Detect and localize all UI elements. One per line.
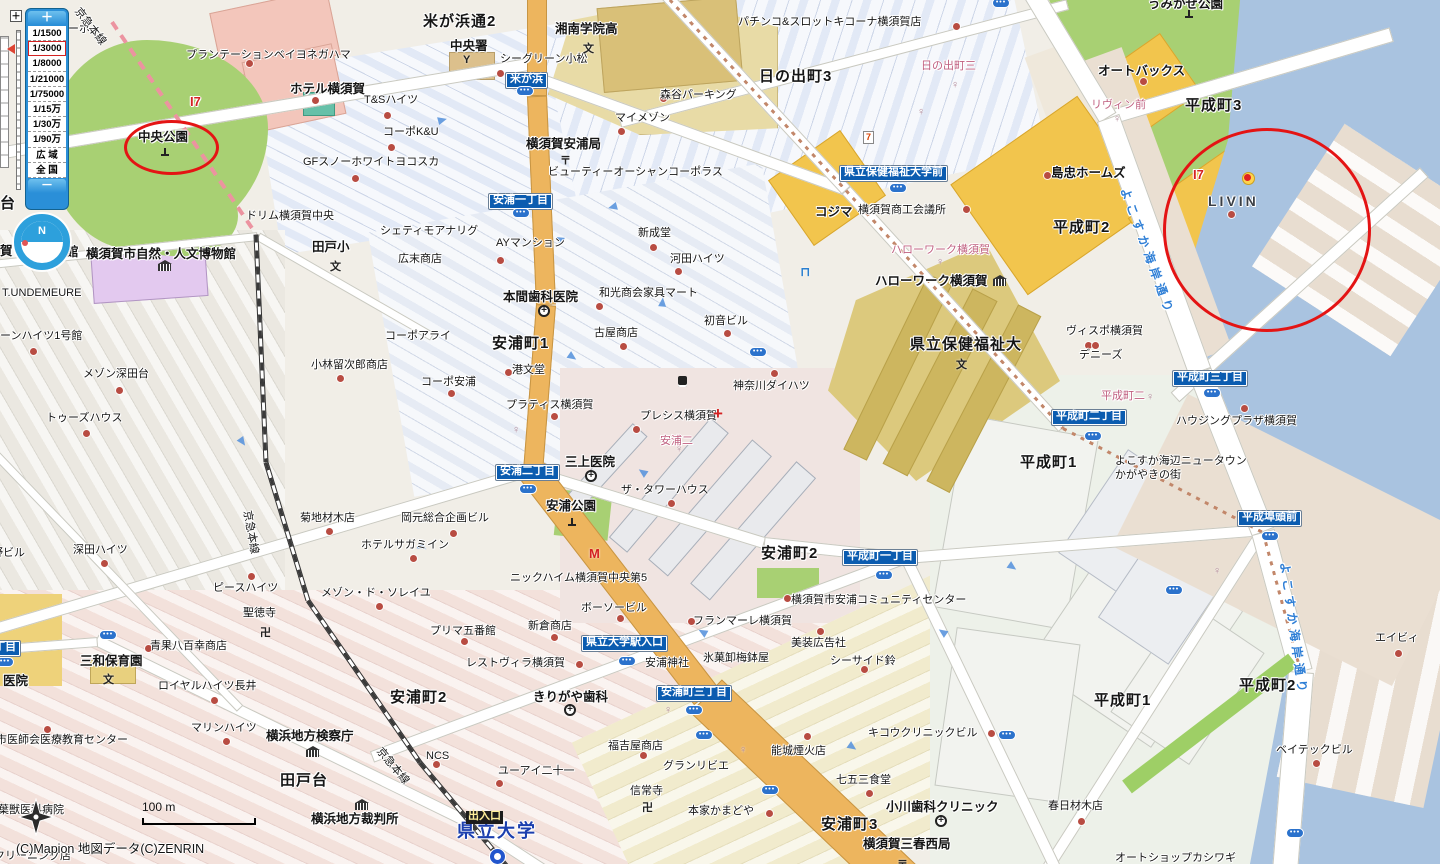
scale-option-[interactable]: 全 国 xyxy=(28,163,66,178)
school-icon: 文 xyxy=(103,671,114,687)
bus-stop-icon: ••• xyxy=(1261,531,1279,541)
place-label: 能城煙火店 xyxy=(771,746,826,758)
place-label: 横須賀商工会議所 xyxy=(858,205,946,217)
zoom-slider[interactable] xyxy=(16,30,21,190)
place-label: シェティモアナリグ xyxy=(380,226,478,238)
facility-label: 小川歯科クリニック xyxy=(886,801,999,814)
district-label: 平成町3 xyxy=(1185,98,1242,114)
facility-label: 医院 xyxy=(3,675,28,688)
poi-dot xyxy=(312,97,319,104)
bus-stop-icon: ••• xyxy=(0,657,14,667)
district-label: 県立保健福祉大 xyxy=(910,337,1022,353)
bus-stop-icon: ••• xyxy=(516,86,534,96)
panel-expand-button[interactable]: ＋ xyxy=(10,10,22,22)
poi-dot xyxy=(771,370,778,377)
place-label: プランテーションベイヨネガハマ xyxy=(186,50,351,62)
map-viewport[interactable]: ＋ ＋ 1/15001/30001/80001/210001/750001/15… xyxy=(0,0,1440,864)
place-label: キコウクリニックビル xyxy=(868,728,978,740)
poi-dot xyxy=(211,697,218,704)
poi-dot xyxy=(618,128,625,135)
place-label: ロイヤルハイツ長井 xyxy=(158,681,256,693)
traffic-signal-icon: ♀ xyxy=(917,106,925,118)
place-label: 氷菓卸梅鉢屋 xyxy=(703,653,769,665)
place-label: ヴィスポ横須賀 xyxy=(1066,326,1143,338)
poi-dot xyxy=(817,628,824,635)
place-label: グリーンハイツ1号館 xyxy=(0,331,82,343)
compass-north-label: N xyxy=(21,221,63,242)
bus-stop-icon: ••• xyxy=(99,630,117,640)
poi-dot xyxy=(497,70,504,77)
poi-dot xyxy=(668,500,675,507)
poi-dot xyxy=(101,560,108,567)
facility-label: 三上医院 xyxy=(565,456,615,469)
place-label: T&Sハイツ xyxy=(364,95,418,107)
poi-dot xyxy=(410,555,417,562)
bus-stop-icon: ••• xyxy=(1286,828,1304,838)
poi-dot xyxy=(650,244,657,251)
intersection-sign: 安浦町三丁目 xyxy=(657,686,731,701)
district-label: 平成町1 xyxy=(1094,693,1151,709)
scale-bar xyxy=(142,818,256,825)
school-icon: 文 xyxy=(330,258,341,274)
district-label: 田戸台 xyxy=(280,773,328,789)
place-label: パチンコ&スロットキコーナ横須賀店 xyxy=(738,17,921,29)
poi-dot xyxy=(505,369,512,376)
poi-dot xyxy=(248,573,255,580)
poi-dot xyxy=(1313,760,1320,767)
poi-dot xyxy=(1078,818,1085,825)
place-label: 広末商店 xyxy=(398,254,442,266)
place-label: 新成堂 xyxy=(638,228,671,240)
bus-stop-icon: ••• xyxy=(998,730,1016,740)
place-label: 美装広告社 xyxy=(791,638,846,650)
place-label: 野ビル xyxy=(0,548,25,560)
intersection-sign: 平成町二丁目 xyxy=(1052,410,1126,425)
scale-option-18000[interactable]: 1/8000 xyxy=(28,56,66,71)
facility-label: 横浜地方検察庁 xyxy=(266,730,354,743)
hospital-icon: + xyxy=(538,305,550,317)
traffic-signal-icon: ♀ xyxy=(739,744,747,756)
scale-option-175000[interactable]: 1/75000 xyxy=(28,87,66,102)
signal-name-label: 平成町二 xyxy=(1101,391,1145,403)
gov-building-icon xyxy=(355,799,369,810)
bus-stop-icon: ••• xyxy=(992,0,1010,8)
place-label: ユーアイ二十一 xyxy=(498,766,575,778)
hospital-icon: + xyxy=(564,704,576,716)
intersection-sign: 平成埠頭前 xyxy=(1238,511,1301,526)
place-label: 青果八百幸商店 xyxy=(150,641,227,653)
place-label: メゾン・ド・ソレイユ xyxy=(321,588,431,600)
place-label: 深田ハイツ xyxy=(73,545,128,557)
signal-name-label: 日の出町三 xyxy=(921,61,976,73)
bus-stop-icon: ••• xyxy=(749,347,767,357)
scale-option-[interactable]: 広 域 xyxy=(28,148,66,163)
post-office-icon: 〒 xyxy=(560,152,571,168)
poi-dot xyxy=(766,810,773,817)
zoom-in-button[interactable]: ＋ xyxy=(28,11,66,25)
place-label: シーサイド鈴 xyxy=(830,656,896,668)
gov-building-icon xyxy=(993,275,1007,286)
place-label: 安浦神社 xyxy=(645,658,689,670)
traffic-signal-icon: ♀ xyxy=(664,704,672,716)
scale-list: 1/15001/30001/80001/210001/750001/15万1/3… xyxy=(28,26,66,178)
poi-dot xyxy=(30,348,37,355)
place-label: よこすか海辺ニュータウン xyxy=(1115,456,1247,468)
poi-dot xyxy=(337,375,344,382)
place-label: 河田ハイツ xyxy=(670,254,725,266)
compass-red-dot xyxy=(22,240,28,246)
poi-dot xyxy=(675,268,682,275)
bus-stop-icon: ••• xyxy=(889,183,907,193)
grid-ref-label: I7 xyxy=(190,95,201,109)
district-label: 平成町2 xyxy=(1239,678,1296,694)
poi-dot xyxy=(804,733,811,740)
intersection-sign: 平成町三丁目 xyxy=(1173,371,1247,386)
poi-dot xyxy=(450,530,457,537)
place-label: コーポアライ xyxy=(385,331,451,343)
poi-dot xyxy=(784,595,791,602)
compass-control[interactable]: N xyxy=(14,214,70,270)
intersection-sign: 安浦一丁目 xyxy=(489,194,552,209)
place-label: 春日材木店 xyxy=(1048,801,1103,813)
poi-dot xyxy=(551,413,558,420)
bus-stop-icon: ••• xyxy=(1084,431,1102,441)
zoom-control[interactable]: ＋ 1/15001/30001/80001/210001/750001/15万1… xyxy=(25,8,69,210)
scale-bar-label: 100 m xyxy=(142,800,175,814)
place-label: 市医師会医療教育センター xyxy=(0,735,128,747)
poi-dot xyxy=(326,528,333,535)
scale-option-11500[interactable]: 1/1500 xyxy=(28,26,66,41)
traffic-signal-icon: ♀ xyxy=(1146,391,1154,403)
bus-stop-icon: ••• xyxy=(618,656,636,666)
place-label: AYマンション xyxy=(496,238,565,250)
place-label: ザ・タワーハウス xyxy=(621,485,709,497)
traffic-signal-icon: ♀ xyxy=(512,424,520,436)
place-label: フランマーレ横須賀 xyxy=(693,616,792,628)
poi-dot xyxy=(83,430,90,437)
place-label: ハウジングプラザ横須賀 xyxy=(1176,416,1297,428)
police-icon: Y xyxy=(463,54,470,66)
place-label: デニーズ xyxy=(1079,350,1122,362)
district-label: 安浦町3 xyxy=(821,817,878,833)
place-label: 菊地材木店 xyxy=(300,513,355,525)
place-label: プリマ五番館 xyxy=(430,626,496,638)
bus-stop-icon: ••• xyxy=(761,785,779,795)
facility-label: 中央署 xyxy=(450,40,488,53)
district-label: 平成町1 xyxy=(1020,455,1077,471)
facility-label: 横須賀三春西局 xyxy=(863,838,951,851)
place-label: メゾン深田台 xyxy=(83,369,149,381)
bridge-icon: ⊓ xyxy=(800,264,810,280)
seven-eleven-icon: 7 xyxy=(863,131,874,144)
place-label: ビューティーオーシャンコーポラス xyxy=(548,167,723,179)
place-label: 七五三食堂 xyxy=(836,775,891,787)
place-label: グランリビエ xyxy=(663,761,729,773)
poi-dot xyxy=(633,426,640,433)
signal-name-label: ハローワーク横須賀 xyxy=(891,245,990,257)
annotation-red-circle xyxy=(1163,128,1371,332)
station-icon xyxy=(490,849,505,864)
post-office-icon: 〒 xyxy=(897,856,908,864)
scale-option-190[interactable]: 1/90万 xyxy=(28,132,66,147)
facility-label: きりがや歯科 xyxy=(533,691,608,704)
poi-dot xyxy=(352,175,359,182)
intersection-sign: 3丁目 xyxy=(0,641,20,656)
poi-dot xyxy=(551,634,558,641)
place-label: 港文堂 xyxy=(512,365,545,377)
facility-label: コジマ xyxy=(815,206,853,219)
poi-dot xyxy=(620,343,627,350)
fountain-icon xyxy=(1184,10,1194,19)
place-label: シーグリーン小松 xyxy=(500,54,587,66)
place-label: 聖徳寺 xyxy=(243,608,276,620)
place-label: プラティス横須賀 xyxy=(506,400,593,412)
signal-name-label: 安浦二 xyxy=(660,436,693,448)
place-label: かがやきの街 xyxy=(1115,470,1181,482)
poi-dot xyxy=(376,603,383,610)
facility-label: 本間歯科医院 xyxy=(503,291,578,304)
poi-dot xyxy=(44,726,51,733)
intersection-sign: 安浦二丁目 xyxy=(496,465,559,480)
poi-dot xyxy=(116,387,123,394)
side-panel-sliver[interactable] xyxy=(0,36,9,168)
facility-label: 横浜地方裁判所 xyxy=(311,813,399,826)
fountain-icon xyxy=(567,518,577,527)
poi-dot xyxy=(866,790,873,797)
station-name: 県立大学 xyxy=(457,822,537,841)
bus-stop-icon: ••• xyxy=(685,705,703,715)
place-label: トゥーズハウス xyxy=(46,413,122,425)
place-label: レストヴィラ横須賀 xyxy=(466,658,565,670)
poi-dot xyxy=(1092,342,1099,349)
place-label: プレシス横須賀 xyxy=(640,411,717,423)
facility-label: 賀 xyxy=(0,245,13,258)
bus-stop-icon: ••• xyxy=(875,570,893,580)
place-label: ピースハイツ xyxy=(213,583,278,595)
poi-dot xyxy=(596,303,603,310)
poi-dot xyxy=(1044,172,1051,179)
place-label: コーポK&U xyxy=(383,127,439,139)
poi-dot xyxy=(1085,342,1092,349)
district-label: 平成町2 xyxy=(1053,220,1110,236)
place-label: 本家かまどや xyxy=(688,806,754,818)
place-label: 和光商会家具マート xyxy=(599,288,698,300)
poi-dot xyxy=(448,390,455,397)
annotation-red-circle xyxy=(124,120,219,175)
place-label: 古屋商店 xyxy=(594,328,638,340)
red-cross-icon: + xyxy=(713,404,723,424)
facility-label: 安浦公園 xyxy=(546,500,596,513)
place-label: ドリム横須賀中央 xyxy=(246,211,334,223)
place-label: マイメゾン xyxy=(615,113,670,125)
station-exit-sign: 出入口 xyxy=(466,811,503,824)
poi-dot xyxy=(461,638,468,645)
hospital-icon: + xyxy=(585,470,597,482)
facility-label: 湘南学院高 xyxy=(555,23,618,36)
place-label: マリンハイツ xyxy=(191,723,257,735)
place-label: ニックハイム横須賀中央第5 xyxy=(510,573,647,585)
poi-dot xyxy=(988,730,995,737)
district-label: 安浦町2 xyxy=(390,690,447,706)
place-label: ボーソービル xyxy=(581,603,647,615)
facility-label: 島忠ホームズ xyxy=(1051,167,1126,180)
place-label: ホテルサガミイン xyxy=(361,540,449,552)
intersection-sign: 県立大学駅入口 xyxy=(582,636,667,651)
poi-dot xyxy=(223,738,230,745)
place-label: 福吉屋商店 xyxy=(608,741,663,753)
traffic-signal-icon: ♀ xyxy=(951,79,959,91)
intersection-sign: 県立保健福祉大学前 xyxy=(840,166,947,181)
facility-label: ホテル横須賀 xyxy=(290,83,365,96)
poi-dot xyxy=(496,780,503,787)
place-label: T.UNDEMEURE xyxy=(2,288,81,300)
bus-stop-icon: ••• xyxy=(519,484,537,494)
district-label: 安浦町2 xyxy=(761,546,818,562)
facility-label: オートバックス xyxy=(1098,65,1185,78)
school-icon: 文 xyxy=(956,356,967,372)
place-label: NCS xyxy=(426,751,449,763)
poi-dot xyxy=(953,23,960,30)
place-label: 横須賀市安浦コミュニティセンター xyxy=(791,595,966,607)
scale-option-13000[interactable]: 1/3000 xyxy=(28,41,66,56)
district-label: 台 xyxy=(0,196,16,212)
poi-dot xyxy=(1395,650,1402,657)
facility-label: 三和保育園 xyxy=(80,655,143,668)
poi-dot xyxy=(497,257,504,264)
museum-icon xyxy=(158,260,172,271)
bus-stop-icon: ••• xyxy=(512,208,530,218)
district-label: 日の出町3 xyxy=(759,69,832,85)
traffic-signal-icon: ♀ xyxy=(1213,565,1221,577)
traffic-signal-icon: ♀ xyxy=(1113,113,1121,125)
scale-option-121000[interactable]: 1/21000 xyxy=(28,72,66,87)
place-label: 初音ビル xyxy=(704,316,748,328)
place-label: 新倉商店 xyxy=(528,621,572,633)
place-label: 岡元総合企画ビル xyxy=(401,513,489,525)
poi-dot xyxy=(1241,405,1248,412)
hospital-icon: + xyxy=(935,815,947,827)
zoom-out-button[interactable]: － xyxy=(28,179,66,193)
facility-label: 横須賀安浦局 xyxy=(526,138,601,151)
intersection-sign: 平成町一丁目 xyxy=(843,550,917,565)
facility-label: 田戸小 xyxy=(312,241,350,254)
zoom-slider-pointer[interactable] xyxy=(7,44,15,54)
copyright-text: (C)Mapion 地図データ(C)ZENRIN xyxy=(16,838,204,857)
place-label: 神奈川ダイハツ xyxy=(733,381,810,393)
place-label: 信常寺 xyxy=(630,786,663,798)
place-label: 小林留次郎商店 xyxy=(311,360,388,372)
place-label: コーポ安浦 xyxy=(421,377,476,389)
poi-dot xyxy=(724,330,731,337)
district-label: 安浦町1 xyxy=(492,336,549,352)
poi-dot xyxy=(640,752,647,759)
poi-dot xyxy=(388,144,395,151)
place-label: オートショップカシワギ xyxy=(1115,853,1236,864)
place-label: 森谷パーキング xyxy=(660,90,737,102)
temple-icon: 卍 xyxy=(260,624,271,640)
temple-icon: 卍 xyxy=(642,799,653,815)
facility-label: ハローワーク横須賀 xyxy=(875,275,988,288)
poi-dot xyxy=(1140,78,1147,85)
place-label: GFスノーホワイトヨコスカ xyxy=(303,157,439,169)
district-label: 米が浜通2 xyxy=(423,14,496,30)
place-label: ベイテックビル xyxy=(1276,745,1353,757)
school-icon: 文 xyxy=(583,40,594,56)
bus-stop-icon: ••• xyxy=(1165,585,1183,595)
scale-option-130[interactable]: 1/30万 xyxy=(28,117,66,132)
gas-station-icon xyxy=(678,376,687,387)
traffic-signal-icon: ♀ xyxy=(936,256,944,268)
poi-dot xyxy=(963,206,970,213)
poi-dot xyxy=(384,112,391,119)
signal-name-label: リヴィン前 xyxy=(1091,100,1146,112)
gov-building-icon xyxy=(306,746,320,757)
poi-dot xyxy=(617,615,624,622)
burger-m-icon: M xyxy=(589,546,600,561)
bus-stop-icon: ••• xyxy=(695,730,713,740)
place-label: エイビィ xyxy=(1375,633,1419,645)
compass-rose-icon xyxy=(18,798,54,836)
bus-stop-icon: ••• xyxy=(1203,388,1221,398)
scale-option-115[interactable]: 1/15万 xyxy=(28,102,66,117)
poi-dot xyxy=(576,661,583,668)
